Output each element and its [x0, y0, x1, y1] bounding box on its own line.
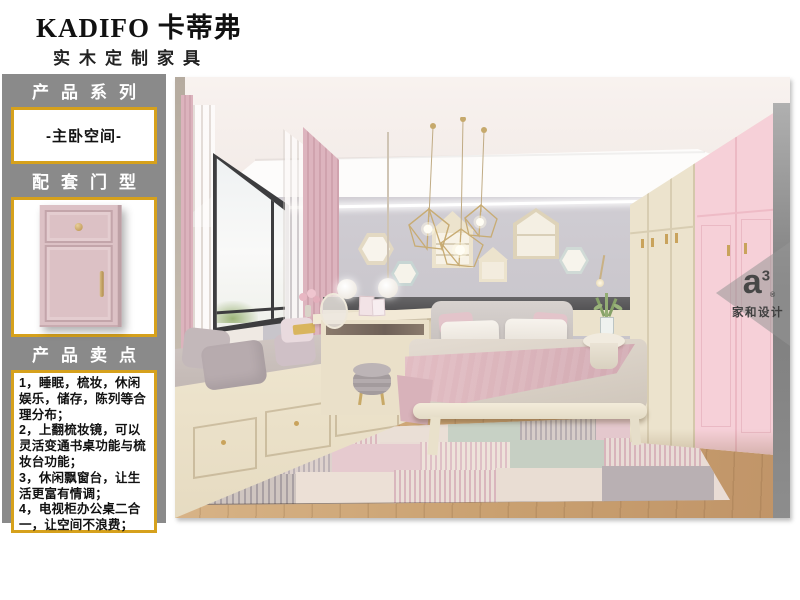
- flower-vase: [305, 305, 311, 317]
- registered-mark: ®: [770, 292, 775, 299]
- catalog-page: KADIFO 卡蒂弗 实木定制家具 产品系列 -主卧空间- 配套门型 产品卖点 …: [0, 0, 800, 600]
- selling-point: 2，上翻梳妆镜，可以灵活变通书桌功能与梳妆台功能；: [19, 423, 149, 470]
- wardrobe-handle: [675, 233, 678, 243]
- stool-top: [353, 363, 391, 377]
- wardrobe-seam: [693, 157, 695, 457]
- window-frame: [213, 153, 289, 333]
- rug-patch: [496, 468, 604, 502]
- house-shelf-line: [517, 234, 555, 236]
- cabinet-door-image: [40, 205, 122, 327]
- watermark-brand: 家和设计: [729, 304, 787, 320]
- series-value-box: -主卧空间-: [11, 107, 157, 164]
- wardrobe-handle: [641, 239, 644, 248]
- rug-patch: [520, 418, 598, 440]
- seat-knob: [221, 440, 226, 445]
- rug-patch: [296, 472, 396, 504]
- seat-drawer: [193, 417, 257, 479]
- watermark-logo-a: a: [743, 263, 762, 301]
- wardrobe-handle: [665, 234, 668, 244]
- wardrobe-handle: [727, 245, 730, 256]
- pendant-lamps: [400, 117, 520, 267]
- window-glass: [213, 153, 289, 333]
- flowers: [299, 293, 307, 301]
- selling-points-box: 1，睡眠，梳妆，休闲娱乐，储存，陈列等合理分布； 2，上翻梳妆镜，可以灵活变通书…: [11, 370, 157, 533]
- series-heading: 产品系列: [2, 81, 166, 105]
- series-value: -主卧空间-: [46, 125, 122, 146]
- selling-point: 3，休闲飘窗台，让生活更富有情调；: [19, 471, 149, 503]
- nightstand-body: [590, 343, 618, 369]
- globe-lamp-cord: [387, 132, 389, 282]
- door-drawer-front: [45, 210, 113, 243]
- selling-point: 1，睡眠，梳妆，休闲娱乐，储存，陈列等合理分布；: [19, 376, 149, 423]
- wardrobe-handle: [744, 243, 747, 254]
- rug-patch: [394, 470, 498, 503]
- wardrobe-seam: [670, 172, 672, 452]
- seat-pillow: [200, 339, 268, 391]
- door-handle: [100, 271, 104, 297]
- door-knob: [75, 223, 83, 231]
- selling-point: 4，电视柜办公桌二合一，让空间不浪费；: [19, 502, 149, 534]
- wall-sconce-bulb: [596, 279, 604, 287]
- wardrobe-handle: [651, 238, 654, 247]
- globe-lamp: [378, 278, 398, 298]
- curtain-left: [181, 95, 193, 360]
- brand-tagline: 实木定制家具: [53, 44, 209, 69]
- rug-patch: [602, 466, 714, 502]
- watermark-logo-sup: 3: [762, 268, 770, 285]
- bed-frame-rail: [413, 403, 647, 419]
- wardrobe-seam: [647, 187, 649, 447]
- flowers: [313, 296, 320, 303]
- selling-heading: 产品卖点: [2, 344, 166, 368]
- photo-frame: [372, 299, 386, 317]
- ball-lamp: [337, 279, 357, 299]
- wardrobe-seam-horizontal: [630, 226, 694, 235]
- seat-knob: [294, 421, 299, 426]
- rug-patch: [510, 440, 606, 470]
- window-mullion-v: [271, 167, 274, 323]
- rug-patch: [332, 444, 422, 472]
- info-sidebar: 产品系列 -主卧空间- 配套门型 产品卖点 1，睡眠，梳妆，休闲娱乐，储存，陈列…: [2, 74, 166, 523]
- brand-title: KADIFO 卡蒂弗: [36, 6, 242, 45]
- door-lower-panel: [45, 245, 113, 322]
- bedroom-photo: a3® 家和设计: [175, 77, 790, 518]
- window: [213, 153, 289, 333]
- watermark-logo: a3®: [731, 265, 787, 299]
- door-type-heading: 配套门型: [2, 171, 166, 195]
- door-type-box: [11, 197, 157, 337]
